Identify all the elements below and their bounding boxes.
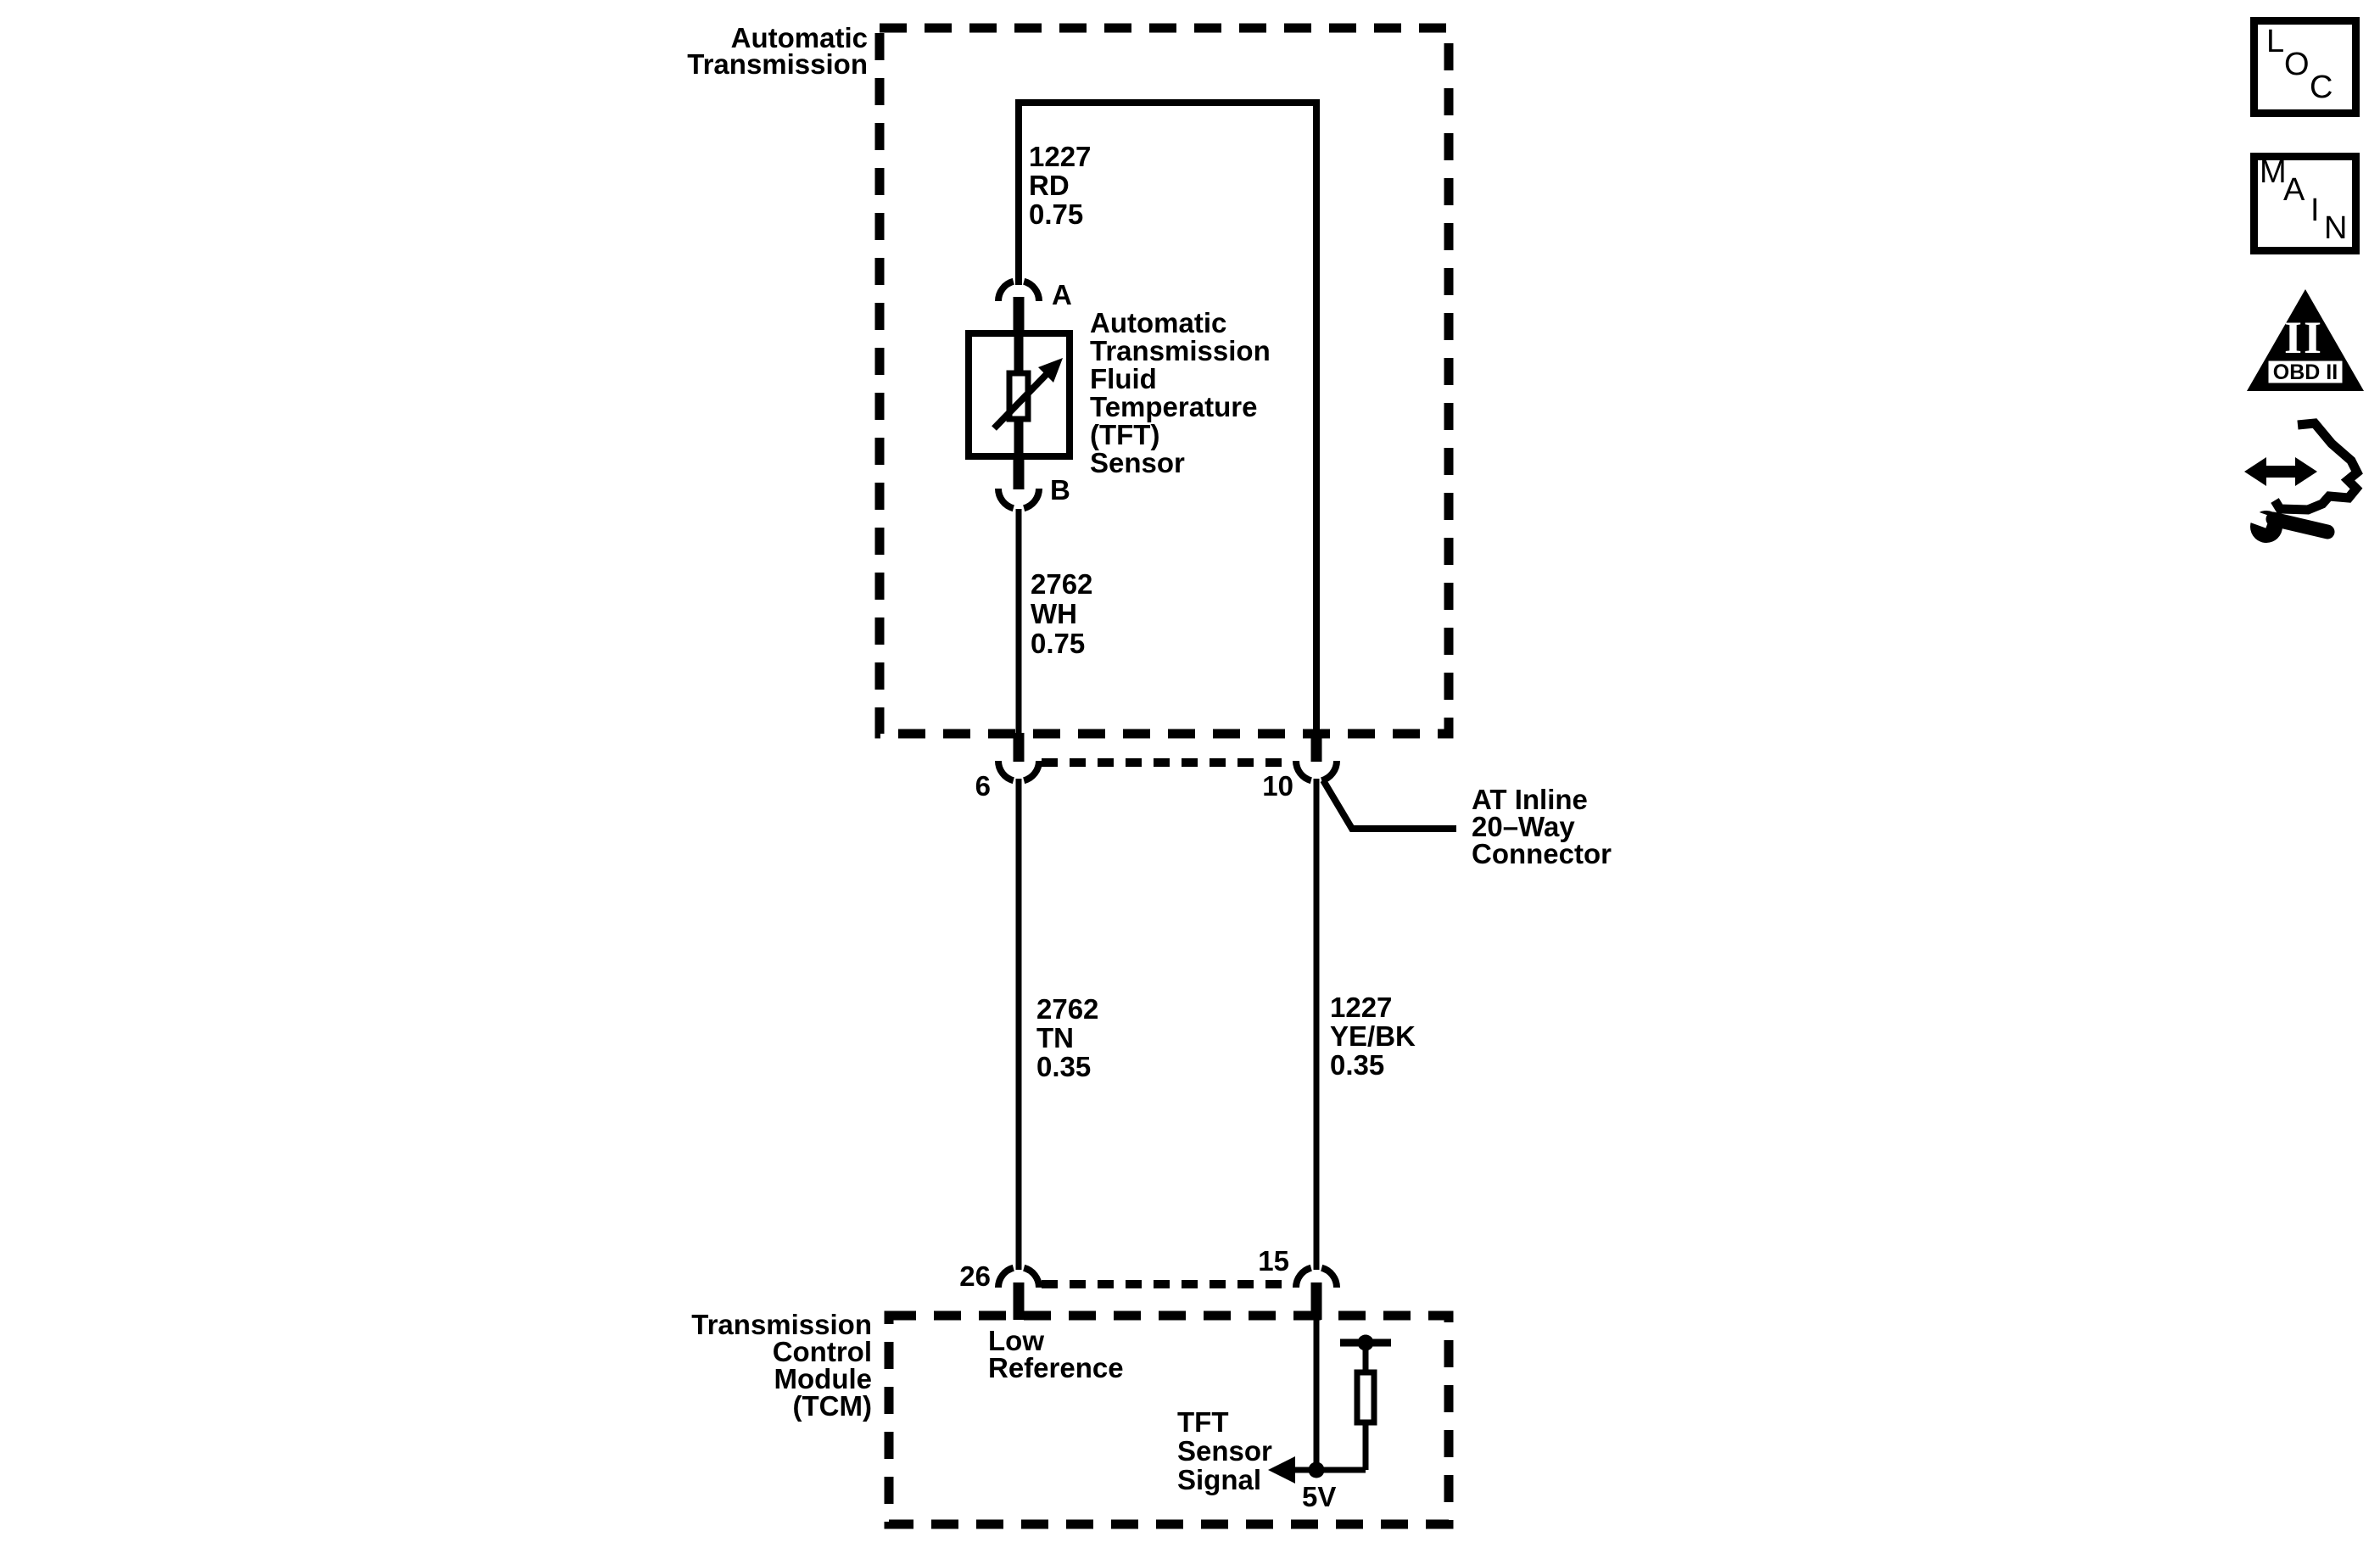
label-line: Transmission bbox=[691, 1311, 872, 1338]
double-arrow-icon bbox=[2244, 457, 2317, 486]
terminal-pin-a bbox=[1014, 297, 1025, 333]
wiring-linework: II OBD II bbox=[0, 0, 2380, 1559]
label-line: Sensor bbox=[1177, 1437, 1272, 1466]
terminal-label-a: A bbox=[1052, 281, 1072, 310]
terminal-label-b: B bbox=[1050, 476, 1070, 505]
automatic-transmission-label: Automatic Transmission bbox=[687, 25, 868, 77]
low-reference-label: Low Reference bbox=[988, 1327, 1124, 1382]
wire-color: YE/BK bbox=[1330, 1022, 1416, 1051]
supply-5v-label: 5V bbox=[1302, 1483, 1336, 1512]
terminal-pin-26 bbox=[1014, 1282, 1025, 1320]
wire-label-1227-yebk: 1227 YE/BK 0.35 bbox=[1330, 993, 1416, 1080]
loc-letter: L bbox=[2266, 25, 2284, 58]
wire-circuit-number: 2762 bbox=[1031, 569, 1092, 599]
wire-color: TN bbox=[1036, 1024, 1098, 1053]
terminal-arc-6 bbox=[998, 761, 1039, 780]
wire-label-1227-rd: 1227 RD 0.75 bbox=[1029, 142, 1091, 229]
label-line: Sensor bbox=[1090, 449, 1271, 477]
label-line: Transmission bbox=[1090, 337, 1271, 365]
pullup-resistor bbox=[1357, 1372, 1374, 1422]
label-line: Fluid bbox=[1090, 365, 1271, 393]
wire-gauge: 0.75 bbox=[1029, 200, 1091, 229]
wire-gauge: 0.75 bbox=[1031, 629, 1092, 658]
label-line: Low bbox=[988, 1327, 1124, 1355]
label-line: Reference bbox=[988, 1355, 1124, 1382]
terminal-label-6: 6 bbox=[975, 772, 991, 801]
main-letter: M bbox=[2260, 156, 2287, 188]
main-letter: I bbox=[2310, 194, 2320, 226]
wire-circuit-number: 1227 bbox=[1330, 993, 1416, 1022]
wire-gauge: 0.35 bbox=[1036, 1053, 1098, 1081]
label-line: 20–Way bbox=[1472, 813, 1612, 841]
loc-letter: O bbox=[2284, 48, 2310, 81]
terminal-arc-b bbox=[998, 489, 1039, 508]
wire-label-2762-tn: 2762 TN 0.35 bbox=[1036, 995, 1098, 1081]
terminal-label-10: 10 bbox=[1262, 772, 1293, 801]
label-line: Transmission bbox=[687, 51, 868, 77]
label-line: Automatic bbox=[1090, 309, 1271, 337]
terminal-pin-b bbox=[1014, 455, 1025, 489]
inline-connector-label: AT Inline 20–Way Connector bbox=[1472, 786, 1612, 868]
obd2-label: OBD II bbox=[2273, 360, 2338, 384]
terminal-label-26: 26 bbox=[959, 1262, 991, 1291]
wire-gauge: 0.35 bbox=[1330, 1051, 1416, 1080]
tft-sensor-label: Automatic Transmission Fluid Temperature… bbox=[1090, 309, 1271, 477]
loc-letter: C bbox=[2310, 71, 2333, 103]
terminal-pin-6 bbox=[1014, 733, 1025, 762]
label-line: Module bbox=[691, 1366, 872, 1393]
wire-circuit-number: 1227 bbox=[1029, 142, 1091, 171]
tft-signal-label: TFT Sensor Signal bbox=[1177, 1408, 1272, 1495]
diagnostic-service-icon bbox=[2242, 423, 2357, 543]
label-line: Connector bbox=[1472, 841, 1612, 868]
wire-color: RD bbox=[1029, 171, 1091, 200]
wire-color: WH bbox=[1031, 599, 1092, 629]
obd2-numeral: II bbox=[2284, 312, 2323, 363]
terminal-pin-15 bbox=[1311, 1282, 1322, 1320]
wire-label-2762-wh: 2762 WH 0.75 bbox=[1031, 569, 1092, 658]
wiring-diagram-page: II OBD II Automatic Transmission 1227 RD… bbox=[0, 0, 2380, 1559]
label-line: (TFT) bbox=[1090, 421, 1271, 449]
terminal-pin-10 bbox=[1311, 733, 1322, 762]
label-line: AT Inline bbox=[1472, 786, 1612, 813]
label-line: Signal bbox=[1177, 1466, 1272, 1495]
inline-connector-leader-line bbox=[1323, 780, 1456, 829]
terminal-label-15: 15 bbox=[1258, 1247, 1289, 1276]
main-letter: N bbox=[2324, 212, 2347, 244]
label-line: TFT bbox=[1177, 1408, 1272, 1437]
label-line: Control bbox=[691, 1338, 872, 1366]
label-line: Automatic bbox=[687, 25, 868, 51]
terminal-arc-10 bbox=[1296, 761, 1337, 780]
tcm-label: Transmission Control Module (TCM) bbox=[691, 1311, 872, 1420]
label-line: (TCM) bbox=[691, 1393, 872, 1420]
wire-circuit-number: 2762 bbox=[1036, 995, 1098, 1024]
label-line: Temperature bbox=[1090, 393, 1271, 421]
main-letter: A bbox=[2283, 174, 2305, 206]
